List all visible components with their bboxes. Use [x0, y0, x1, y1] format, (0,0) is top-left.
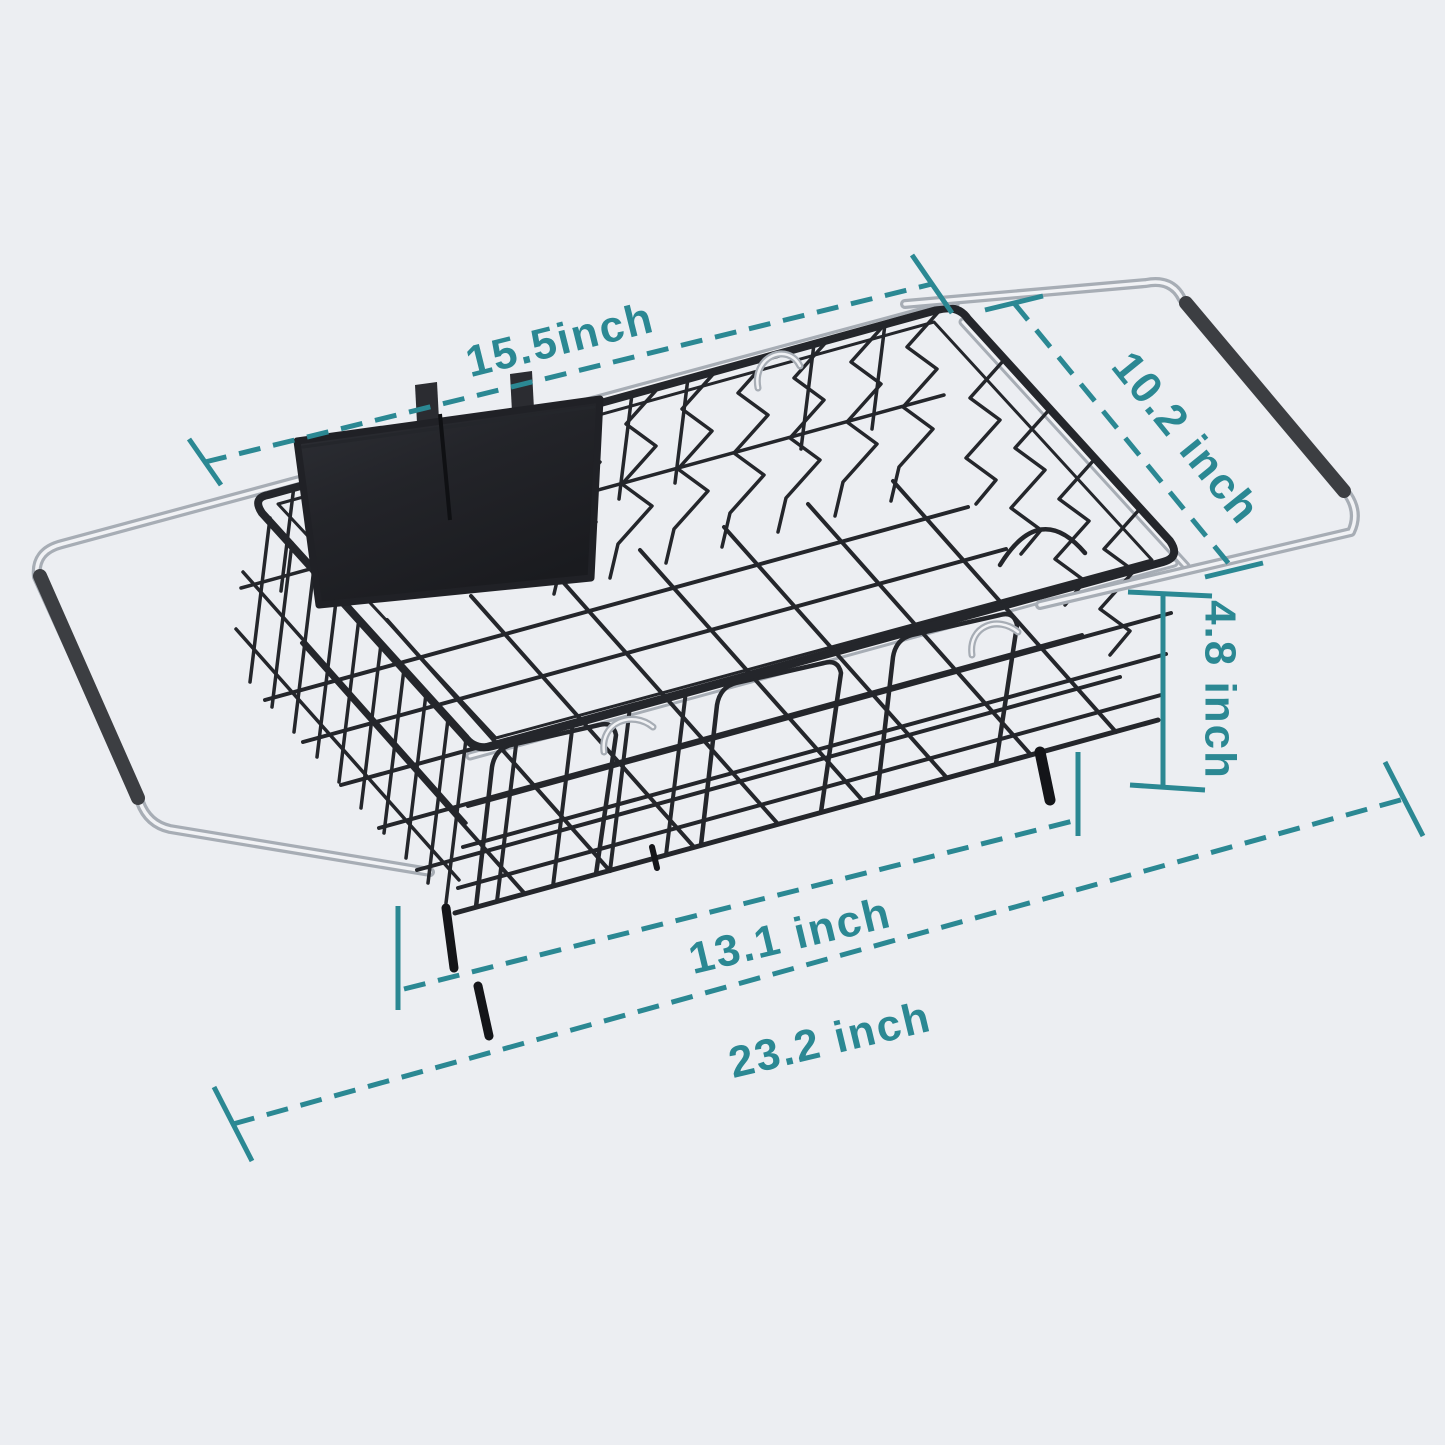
utensil-cup: [297, 371, 600, 605]
dimension-tick: [1130, 785, 1205, 790]
wire: [722, 355, 772, 547]
dimension-tick: [189, 439, 221, 485]
wire: [835, 324, 885, 516]
dimension-label: 23.2 inch: [724, 992, 936, 1088]
foot: [446, 908, 454, 968]
cup-hook-tab: [415, 382, 439, 423]
product-dimension-diagram: 15.5inch 10.2 inch 4.8 inch 13.1 inch 23…: [0, 0, 1445, 1445]
foot: [1040, 752, 1050, 800]
wire: [666, 691, 686, 855]
foot: [478, 986, 489, 1036]
wire: [966, 360, 1004, 504]
dimension-label: 4.8 inch: [1196, 600, 1245, 780]
left-handle-grip: [40, 576, 138, 798]
wire: [666, 371, 716, 563]
dimension-tick: [1385, 762, 1423, 836]
dimension-tick: [1128, 592, 1212, 596]
basket-feet: [446, 752, 1050, 1036]
hoop: [1000, 529, 1085, 565]
hoop: [877, 614, 1017, 797]
wire: [610, 386, 660, 578]
hoop: [476, 724, 616, 907]
wire: [553, 722, 573, 886]
dimension-tick: [214, 1087, 252, 1161]
foot: [652, 847, 657, 868]
wire: [891, 309, 941, 501]
